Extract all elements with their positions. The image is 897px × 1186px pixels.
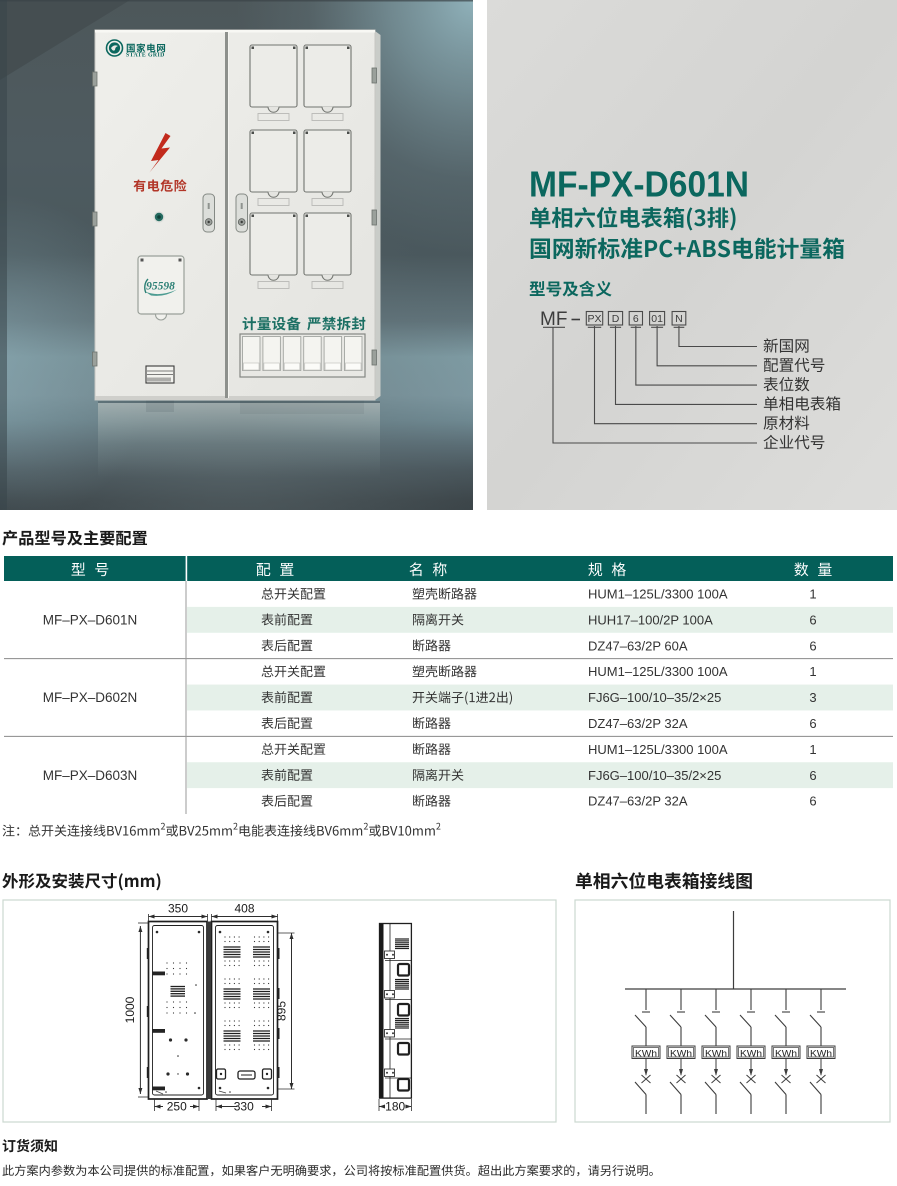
svg-text:KWh: KWh [810,1049,832,1060]
svg-text:MF-PX-D601N: MF-PX-D601N [529,164,749,205]
svg-text:HUM1–125L/3300 100A: HUM1–125L/3300 100A [588,664,728,679]
svg-text:95598: 95598 [146,281,175,293]
svg-text:KWh: KWh [740,1049,762,1060]
svg-text:01: 01 [651,313,663,325]
svg-text:MF–PX–D602N: MF–PX–D602N [43,690,138,705]
svg-text:6: 6 [809,768,816,783]
svg-text:895: 895 [275,1001,289,1021]
svg-text:3: 3 [809,690,816,705]
svg-text:6: 6 [809,716,816,731]
svg-text:DZ47–63/2P 32A: DZ47–63/2P 32A [588,716,688,731]
svg-text:6: 6 [809,794,816,809]
svg-text:PX: PX [587,313,601,325]
svg-text:1: 1 [809,742,816,757]
svg-text:1000: 1000 [123,996,137,1023]
svg-text:330: 330 [234,1100,254,1114]
svg-text:180: 180 [385,1100,405,1114]
svg-text:1: 1 [809,587,816,602]
svg-text:350: 350 [168,902,188,916]
svg-text:FJ6G–100/10–35/2×25: FJ6G–100/10–35/2×25 [588,690,721,705]
svg-text:STATE GRID: STATE GRID [126,53,165,59]
svg-text:FJ6G–100/10–35/2×25: FJ6G–100/10–35/2×25 [588,768,721,783]
svg-text:DZ47–63/2P 32A: DZ47–63/2P 32A [588,794,688,809]
svg-text:MF–PX–D601N: MF–PX–D601N [43,612,138,627]
svg-text:DZ47–63/2P 60A: DZ47–63/2P 60A [588,638,688,653]
svg-text:6: 6 [809,612,816,627]
svg-text:408: 408 [234,902,254,916]
svg-text:D: D [612,313,620,325]
svg-text:HUM1–125L/3300 100A: HUM1–125L/3300 100A [588,587,728,602]
svg-text:6: 6 [633,313,639,325]
svg-text:KWh: KWh [635,1049,657,1060]
svg-text:MF–PX–D603N: MF–PX–D603N [43,768,138,783]
svg-text:KWh: KWh [775,1049,797,1060]
svg-text:N: N [675,313,683,325]
svg-text:KWh: KWh [670,1049,692,1060]
svg-text:HUH17–100/2P 100A: HUH17–100/2P 100A [588,612,713,627]
svg-text:250: 250 [167,1100,187,1114]
svg-text:HUM1–125L/3300 100A: HUM1–125L/3300 100A [588,742,728,757]
svg-text:KWh: KWh [705,1049,727,1060]
svg-text:1: 1 [809,664,816,679]
svg-text:6: 6 [809,638,816,653]
